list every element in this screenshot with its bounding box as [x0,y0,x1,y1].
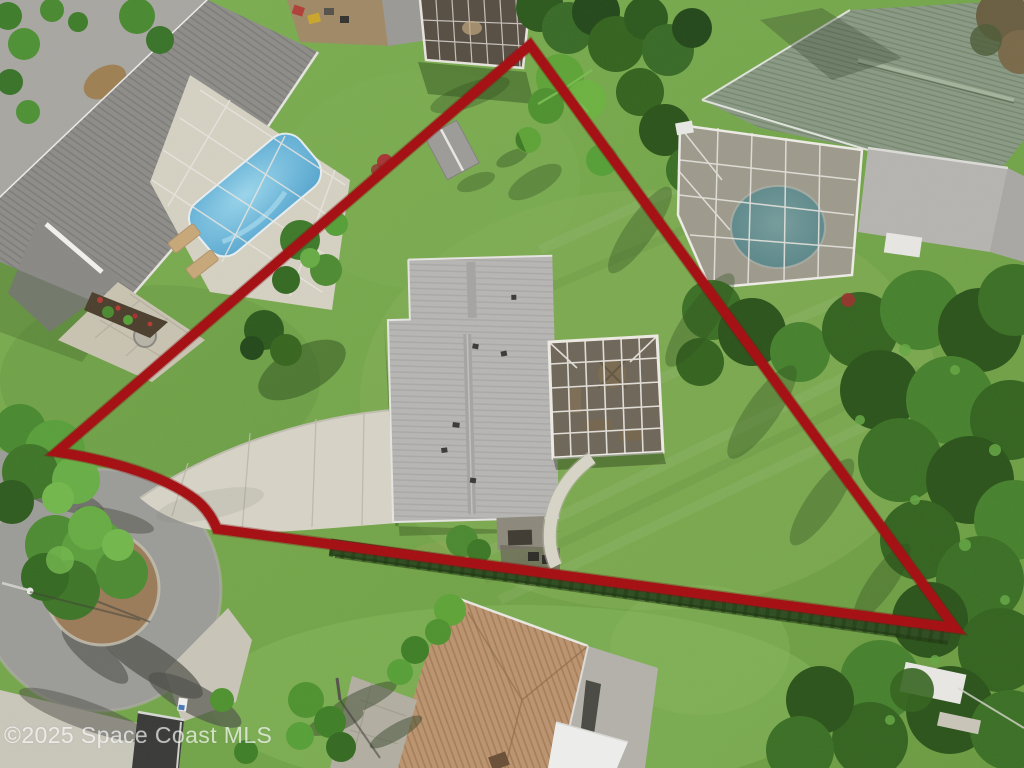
lanai [549,336,666,470]
red-bloom [841,293,855,307]
trailer-shed [132,712,184,768]
mailbox [177,698,188,712]
right-pool-enclosure [678,125,862,288]
aerial-photo-canvas [0,0,1024,768]
subject-house [382,256,563,536]
aerial-photo: ©2025 Space Coast MLS [0,0,1024,768]
